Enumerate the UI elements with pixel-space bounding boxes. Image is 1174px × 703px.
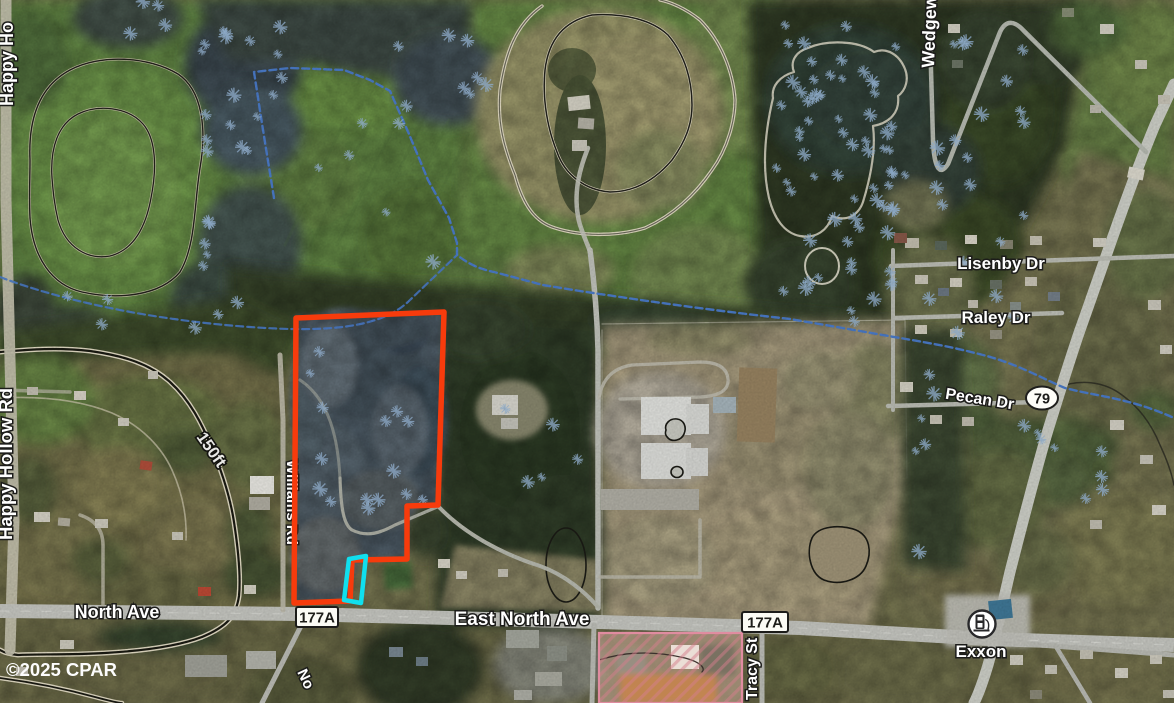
svg-text:Happy Hollow Rd: Happy Hollow Rd — [0, 388, 16, 540]
svg-text:North Ave: North Ave — [75, 602, 160, 622]
svg-text:Lisenby Dr: Lisenby Dr — [957, 254, 1045, 273]
svg-text:Wedgew: Wedgew — [918, 0, 941, 68]
svg-text:©2025 CPAR: ©2025 CPAR — [6, 659, 117, 680]
svg-text:Happy Ho: Happy Ho — [0, 22, 17, 106]
svg-text:177A: 177A — [299, 610, 335, 627]
svg-text:East North Ave: East North Ave — [455, 609, 590, 630]
svg-text:79: 79 — [1034, 392, 1050, 408]
svg-text:Exxon: Exxon — [955, 642, 1006, 661]
svg-text:177A: 177A — [747, 615, 783, 632]
svg-text:Raley Dr: Raley Dr — [962, 308, 1031, 327]
svg-text:Tracy St: Tracy St — [744, 637, 761, 700]
